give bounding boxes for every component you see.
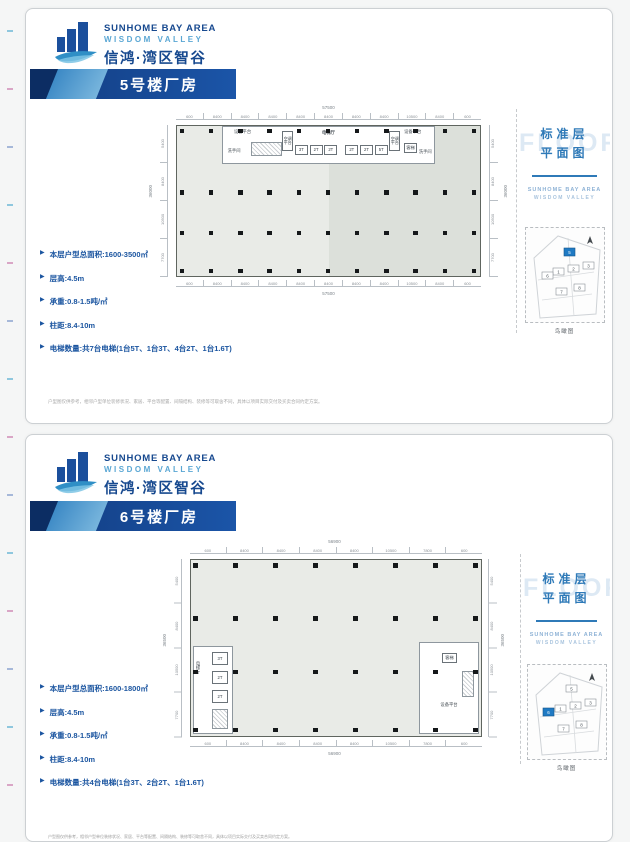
spec-column-span: 柱距:8.4-10m — [50, 754, 95, 765]
dim: 7700 — [490, 239, 498, 277]
lift-5t: 5T — [375, 145, 388, 155]
dim: 10500 — [398, 280, 426, 286]
structural-column — [297, 190, 302, 195]
plan-dims-right: 54008400105007700 — [488, 559, 496, 737]
structural-column — [413, 231, 418, 236]
registration-mark — [7, 668, 13, 670]
structural-column — [472, 129, 477, 134]
building5-title: 5号楼厂房 — [68, 74, 198, 95]
logo-buildings-icon — [54, 449, 98, 495]
dim: 10500 — [372, 547, 409, 553]
spec-area: 本层户型总面积:1600-1800㎡ — [50, 683, 148, 694]
structural-column — [353, 728, 358, 733]
dim: 5400 — [489, 559, 497, 604]
bullet-triangle-icon: ▶ — [40, 730, 45, 739]
disclaimer-text: 户型图仅供参考，相邻户型单位装修状况、家居、平台等配置、间隔结构、装修等可取舍不… — [48, 399, 588, 405]
structural-column — [433, 670, 438, 675]
structural-column — [267, 190, 272, 195]
bullet-triangle-icon: ▶ — [40, 296, 45, 305]
structural-column — [267, 231, 272, 236]
plan-dims-top: 6008400840084008400105007800600 — [190, 547, 482, 554]
sidebar-title-block: FLOOR 标准层 平面图 — [523, 125, 606, 169]
spec-item: ▶层高:4.5m — [40, 273, 300, 284]
stairs-left — [251, 142, 283, 156]
structural-column — [313, 670, 318, 675]
brand-name-en: SUNHOME BAY AREA — [104, 453, 216, 464]
dim: 8400 — [370, 113, 398, 119]
structural-column — [443, 231, 448, 236]
bullet-triangle-icon: ▶ — [40, 754, 45, 763]
plan-dims-right: 54008400105007700 — [489, 125, 497, 277]
structural-column — [238, 269, 243, 274]
structural-column — [443, 129, 448, 134]
structural-column — [413, 190, 418, 195]
registration-mark — [7, 436, 13, 438]
spec-area: 本层户型总面积:1600-3500㎡ — [50, 249, 148, 260]
structural-column — [355, 190, 360, 195]
spec-item: ▶层高:4.5m — [40, 707, 300, 718]
structural-column — [209, 269, 214, 274]
registration-mark — [7, 262, 13, 264]
spec-item: ▶电梯数量:共7台电梯(1台5T、1台3T、4台2T、1台1.6T) — [40, 343, 300, 354]
structural-column — [413, 269, 418, 274]
sidebar-standard-floor: FLOOR 标准层 平面图 SUNHOME BAY AREA WISDOM VA… — [520, 554, 613, 764]
dim: 8400 — [299, 547, 336, 553]
dim: 5400 — [490, 125, 498, 163]
structural-column — [473, 728, 478, 733]
spec-item: ▶本层户型总面积:1600-3500㎡ — [40, 249, 300, 260]
sidebar-title-line1: 标准层 — [523, 125, 606, 144]
registration-mark — [7, 378, 13, 380]
structural-column — [209, 231, 214, 236]
lift-3t: 3T — [212, 652, 228, 665]
building5-title-banner: 5号楼厂房 — [30, 69, 236, 99]
structural-column — [433, 728, 438, 733]
footer-disclaimer: 户型图仅供参考，相邻户型单位装修状况、家居、平台等配置、间隔结构、装修等可取舍不… — [48, 834, 593, 840]
dim: 8400 — [425, 280, 453, 286]
registration-mark — [7, 610, 13, 612]
building6-title: 6号楼厂房 — [68, 506, 198, 527]
structural-column — [384, 190, 389, 195]
elevator-core-left: 电梯厅 3T 2T 2T — [193, 646, 233, 734]
structural-column — [413, 129, 418, 134]
dim: 600 — [190, 547, 226, 553]
dim: 10500 — [489, 648, 497, 693]
plan-total-width: 56900 — [162, 539, 507, 544]
plan-total-height: 36000 — [148, 185, 153, 198]
company-logo: SUNHOME BAY AREA WISDOM VALLEY 信鸿·湾区智谷 — [54, 449, 216, 498]
dim: 8400 — [490, 163, 498, 201]
building6-specs-list: ▶本层户型总面积:1600-1800㎡ ▶层高:4.5m ▶承重:0.8-1.5… — [40, 683, 300, 801]
logo-buildings-icon — [54, 19, 98, 65]
brand-name-cn: 信鸿·湾区智谷 — [104, 477, 216, 498]
dim: 8400 — [160, 163, 168, 201]
structural-column — [233, 563, 238, 568]
sidebar-brand-en: SUNHOME BAY AREA — [527, 632, 606, 638]
dim: 8400 — [336, 740, 373, 746]
sidebar-brand-en: SUNHOME BAY AREA — [523, 187, 606, 193]
dim: 600 — [445, 547, 482, 553]
structural-column — [313, 563, 318, 568]
structural-column — [233, 616, 238, 621]
dim: 8400 — [258, 113, 286, 119]
bullet-triangle-icon: ▶ — [40, 320, 45, 329]
structural-column — [326, 231, 331, 236]
sidebar-title-block: FLOOR 标准层 平面图 — [527, 570, 606, 614]
dim: 7800 — [409, 740, 446, 746]
dim: 8400 — [262, 547, 299, 553]
structural-column — [313, 728, 318, 733]
structural-column — [384, 269, 389, 274]
dim: 8400 — [342, 113, 370, 119]
brand-name-sub: WISDOM VALLEY — [104, 465, 216, 474]
brochure-page-building5: SUNHOME BAY AREA WISDOM VALLEY 信鸿·湾区智谷 5… — [25, 8, 613, 424]
spec-item: ▶柱距:8.4-10m — [40, 754, 300, 765]
structural-column — [473, 616, 478, 621]
north-arrow-icon — [589, 673, 595, 681]
bullet-triangle-icon: ▶ — [40, 343, 45, 352]
dim: 10500 — [398, 113, 426, 119]
structural-column — [353, 670, 358, 675]
lift-2t: 2T — [212, 671, 228, 684]
registration-mark — [7, 784, 13, 786]
company-logo: SUNHOME BAY AREA WISDOM VALLEY 信鸿·湾区智谷 — [54, 19, 216, 68]
lift-2t: 2T — [345, 145, 358, 155]
spec-item: ▶本层户型总面积:1600-1800㎡ — [40, 683, 300, 694]
structural-column — [355, 231, 360, 236]
structural-column — [443, 269, 448, 274]
passenger-lift: 客梯 — [404, 143, 417, 153]
structural-column — [238, 231, 243, 236]
sidebar-title: 标准层 平面图 — [527, 570, 606, 608]
structural-column — [393, 728, 398, 733]
spec-load: 承重:0.8-1.5吨/㎡ — [50, 296, 108, 307]
plan-total-height: 36000 — [503, 185, 508, 198]
structural-column — [473, 563, 478, 568]
structural-column — [355, 129, 360, 134]
structural-column — [326, 190, 331, 195]
registration-mark — [7, 88, 13, 90]
spec-column-span: 柱距:8.4-10m — [50, 320, 95, 331]
structural-column — [433, 616, 438, 621]
plan-dims-top: 6008400840084008400840084008400105008400… — [176, 113, 481, 120]
dim: 600 — [445, 740, 482, 746]
spec-item: ▶柱距:8.4-10m — [40, 320, 300, 331]
service-core-right: 客梯 设备平台 — [419, 642, 479, 734]
structural-column — [233, 670, 238, 675]
spec-item: ▶承重:0.8-1.5吨/㎡ — [40, 730, 300, 741]
passenger-lift: 客梯 — [442, 653, 457, 663]
registration-mark — [7, 494, 13, 496]
plan-total-width: 57500 — [146, 105, 511, 110]
structural-column — [193, 670, 198, 675]
bullet-triangle-icon: ▶ — [40, 707, 45, 716]
site-map: 1 2 3 5 6 7 8 — [527, 664, 607, 760]
building6-title-banner: 6号楼厂房 — [30, 501, 236, 531]
dim: 8400 — [299, 740, 336, 746]
structural-column — [297, 129, 302, 134]
dim: 10500 — [490, 201, 498, 239]
structural-column — [355, 269, 360, 274]
dim: 5400 — [160, 125, 168, 163]
structural-column — [209, 129, 214, 134]
sidebar-title-line2: 平面图 — [527, 589, 606, 608]
dim: 8400 — [489, 604, 497, 649]
brochure-page-building6: SUNHOME BAY AREA WISDOM VALLEY 信鸿·湾区智谷 6… — [25, 434, 613, 842]
structural-column — [193, 616, 198, 621]
ac-platform-left: 空调平台 — [282, 131, 293, 151]
spec-elevators: 电梯数量:共7台电梯(1台5T、1台3T、4台2T、1台1.6T) — [50, 343, 232, 354]
lift-3t: 3T — [295, 145, 308, 155]
sidebar-title-line2: 平面图 — [523, 144, 606, 163]
lift-2t: 2T — [324, 145, 337, 155]
sidebar-divider — [532, 175, 597, 177]
structural-column — [180, 129, 185, 134]
dim: 8400 — [286, 113, 314, 119]
dim: 7700 — [489, 693, 497, 738]
sidebar-title: 标准层 平面图 — [523, 125, 606, 163]
structural-column — [353, 563, 358, 568]
structural-column — [273, 563, 278, 568]
dim: 8400 — [231, 113, 259, 119]
structural-column — [326, 129, 331, 134]
brand-name-sub: WISDOM VALLEY — [104, 35, 216, 44]
registration-mark — [7, 552, 13, 554]
equipment-platform-label: 设备平台 — [440, 702, 457, 708]
registration-mark — [7, 146, 13, 148]
site-map: 1 2 3 5 6 7 8 — [525, 227, 605, 323]
registration-mark — [7, 726, 13, 728]
site-map-caption: 鸟瞰图 — [523, 327, 606, 335]
brand-name-cn: 信鸿·湾区智谷 — [104, 47, 216, 68]
dim: 8400 — [174, 604, 182, 649]
structural-column — [384, 231, 389, 236]
brand-name-en: SUNHOME BAY AREA — [104, 23, 216, 34]
spec-item: ▶电梯数量:共4台电梯(1台3T、2台2T、1台1.6T) — [40, 777, 300, 788]
bullet-triangle-icon: ▶ — [40, 249, 45, 258]
dim: 8400 — [314, 280, 342, 286]
dim: 5400 — [174, 559, 182, 604]
structural-column — [297, 269, 302, 274]
spec-elevators: 电梯数量:共4台电梯(1台3T、2台2T、1台1.6T) — [50, 777, 204, 788]
lift-2t: 2T — [310, 145, 323, 155]
structural-column — [433, 563, 438, 568]
ac-platform-right: 空调平台 — [389, 131, 400, 151]
structural-column — [273, 616, 278, 621]
structural-column — [180, 190, 185, 195]
dim: 8400 — [370, 280, 398, 286]
building5-specs-list: ▶本层户型总面积:1600-3500㎡ ▶层高:4.5m ▶承重:0.8-1.5… — [40, 249, 300, 367]
stairs — [462, 671, 474, 697]
brand-text: SUNHOME BAY AREA WISDOM VALLEY 信鸿·湾区智谷 — [104, 449, 216, 498]
structural-column — [233, 728, 238, 733]
structural-column — [393, 563, 398, 568]
lift-2t: 2T — [212, 690, 228, 703]
structural-column — [393, 670, 398, 675]
site-map-caption: 鸟瞰图 — [527, 764, 606, 772]
registration-mark — [7, 320, 13, 322]
dim: 8400 — [425, 113, 453, 119]
structural-column — [384, 129, 389, 134]
brand-text: SUNHOME BAY AREA WISDOM VALLEY 信鸿·湾区智谷 — [104, 19, 216, 68]
structural-column — [313, 616, 318, 621]
structural-column — [180, 269, 185, 274]
structural-column — [267, 129, 272, 134]
sidebar-brand-sub: WISDOM VALLEY — [523, 195, 606, 201]
dim: 8400 — [336, 547, 373, 553]
structural-column — [180, 231, 185, 236]
dim: 8400 — [226, 547, 263, 553]
washroom-label: 洗手间 — [419, 149, 432, 155]
stairs — [212, 709, 228, 729]
washroom-label: 洗手间 — [228, 148, 241, 154]
dim: 8400 — [342, 280, 370, 286]
dim: 600 — [453, 113, 481, 119]
registration-mark — [7, 204, 13, 206]
dim: 8400 — [203, 113, 231, 119]
structural-column — [297, 231, 302, 236]
dim: 600 — [176, 113, 203, 119]
structural-column — [273, 670, 278, 675]
structural-column — [238, 129, 243, 134]
bullet-triangle-icon: ▶ — [40, 777, 45, 786]
structural-column — [326, 269, 331, 274]
dim: 7800 — [409, 547, 446, 553]
lift-2t: 2T — [360, 145, 373, 155]
dim: 8400 — [314, 113, 342, 119]
sidebar-brand-sub: WISDOM VALLEY — [527, 640, 606, 646]
structural-column — [209, 190, 214, 195]
structural-column — [472, 269, 477, 274]
structural-column — [473, 670, 478, 675]
equipment-platform-label: 设备平台 — [234, 129, 251, 135]
structural-column — [193, 563, 198, 568]
north-arrow-icon — [587, 236, 593, 244]
registration-mark — [7, 30, 13, 32]
spec-height: 层高:4.5m — [50, 707, 85, 718]
structural-column — [472, 231, 477, 236]
spec-item: ▶承重:0.8-1.5吨/㎡ — [40, 296, 300, 307]
bullet-triangle-icon: ▶ — [40, 683, 45, 692]
dim: 600 — [453, 280, 481, 286]
structural-column — [472, 190, 477, 195]
structural-column — [273, 728, 278, 733]
structural-column — [353, 616, 358, 621]
plan-total-height: 36500 — [162, 634, 167, 647]
sidebar-title-line1: 标准层 — [527, 570, 606, 589]
structural-column — [238, 190, 243, 195]
structural-column — [267, 269, 272, 274]
sidebar-standard-floor: FLOOR 标准层 平面图 SUNHOME BAY AREA WISDOM VA… — [516, 109, 613, 333]
dim: 10500 — [372, 740, 409, 746]
sidebar-divider — [536, 620, 598, 622]
structural-column — [393, 616, 398, 621]
structural-column — [193, 728, 198, 733]
dim: 10500 — [160, 201, 168, 239]
spec-load: 承重:0.8-1.5吨/㎡ — [50, 730, 108, 741]
bullet-triangle-icon: ▶ — [40, 273, 45, 282]
structural-column — [443, 190, 448, 195]
spec-height: 层高:4.5m — [50, 273, 85, 284]
plan-total-height: 36500 — [500, 634, 505, 647]
